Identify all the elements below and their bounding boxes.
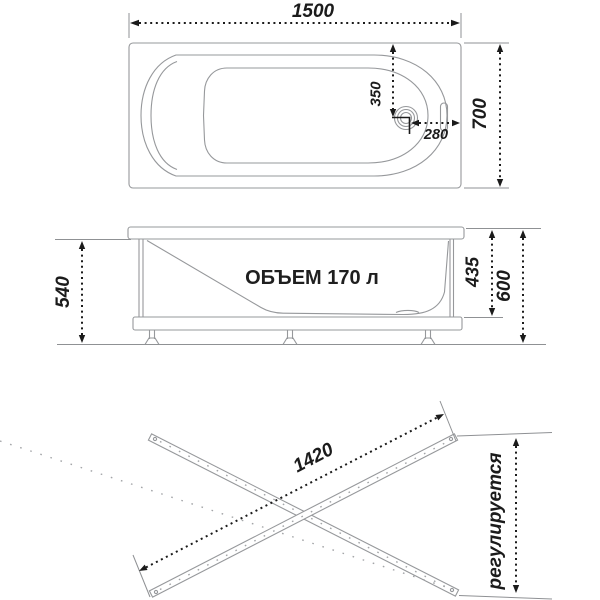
base-frame bbox=[133, 317, 462, 330]
arrowhead bbox=[513, 438, 519, 446]
foot-right bbox=[421, 330, 435, 345]
arrowhead bbox=[513, 585, 519, 593]
base-rails-view: 1420 регулируется bbox=[0, 401, 552, 599]
dimension-length: 1500 bbox=[129, 1, 461, 38]
headrest-arc bbox=[151, 62, 177, 170]
height-left-label: 540 bbox=[53, 276, 74, 308]
drain-horizontal-label: 280 bbox=[423, 127, 448, 143]
drain-vertical-label: 350 bbox=[368, 81, 385, 107]
arrowhead bbox=[139, 565, 148, 571]
dimension-drain-horizontal: 280 bbox=[411, 120, 460, 143]
rim-to-frame-label: 435 bbox=[463, 256, 483, 288]
arrowhead bbox=[452, 120, 460, 126]
arrowhead bbox=[520, 335, 526, 343]
foot-center bbox=[283, 330, 297, 345]
top-view: 1500 700 350 280 bbox=[129, 1, 509, 188]
dimension-adjustable: регулируется bbox=[457, 433, 552, 600]
width-label: 700 bbox=[470, 98, 491, 130]
arrowhead bbox=[436, 414, 445, 420]
arrowhead bbox=[79, 335, 85, 343]
arrowhead bbox=[497, 44, 503, 52]
bathtub-technical-drawing: 1500 700 350 280 bbox=[0, 0, 600, 600]
arrowhead bbox=[489, 230, 495, 238]
arrowhead bbox=[390, 44, 396, 52]
dimension-width: 700 bbox=[464, 43, 509, 188]
side-view: ОБЪЕМ 170 л 540 435 600 bbox=[53, 227, 546, 345]
waste-outlet bbox=[396, 310, 419, 312]
arrowhead bbox=[497, 179, 503, 187]
volume-label: ОБЪЕМ 170 л bbox=[245, 267, 379, 289]
height-total-label: 600 bbox=[494, 270, 515, 302]
arrowhead bbox=[451, 20, 460, 26]
foot-left bbox=[145, 330, 159, 345]
dimension-height-left: 540 bbox=[53, 240, 131, 344]
arrowhead bbox=[79, 241, 85, 249]
arrowhead bbox=[489, 308, 495, 316]
dimension-height-total: 600 bbox=[494, 230, 526, 343]
adjustable-label: регулируется bbox=[485, 453, 506, 591]
length-label: 1500 bbox=[292, 1, 335, 22]
drawing-svg: 1500 700 350 280 bbox=[0, 0, 600, 600]
tub-rim-side bbox=[128, 227, 464, 239]
arrowhead bbox=[130, 20, 139, 26]
arrowhead bbox=[520, 230, 526, 238]
